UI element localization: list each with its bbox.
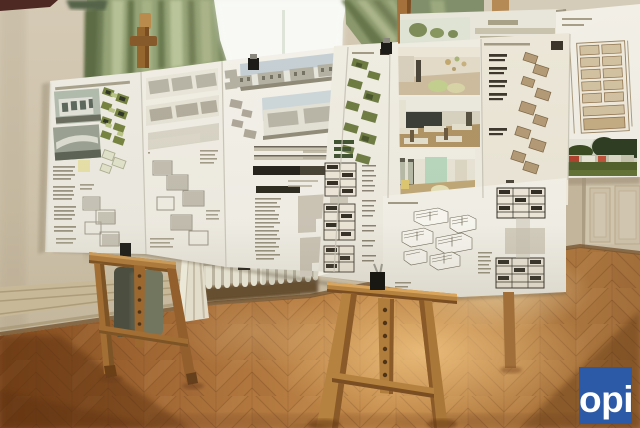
svg-text:opi: opi (579, 379, 633, 420)
